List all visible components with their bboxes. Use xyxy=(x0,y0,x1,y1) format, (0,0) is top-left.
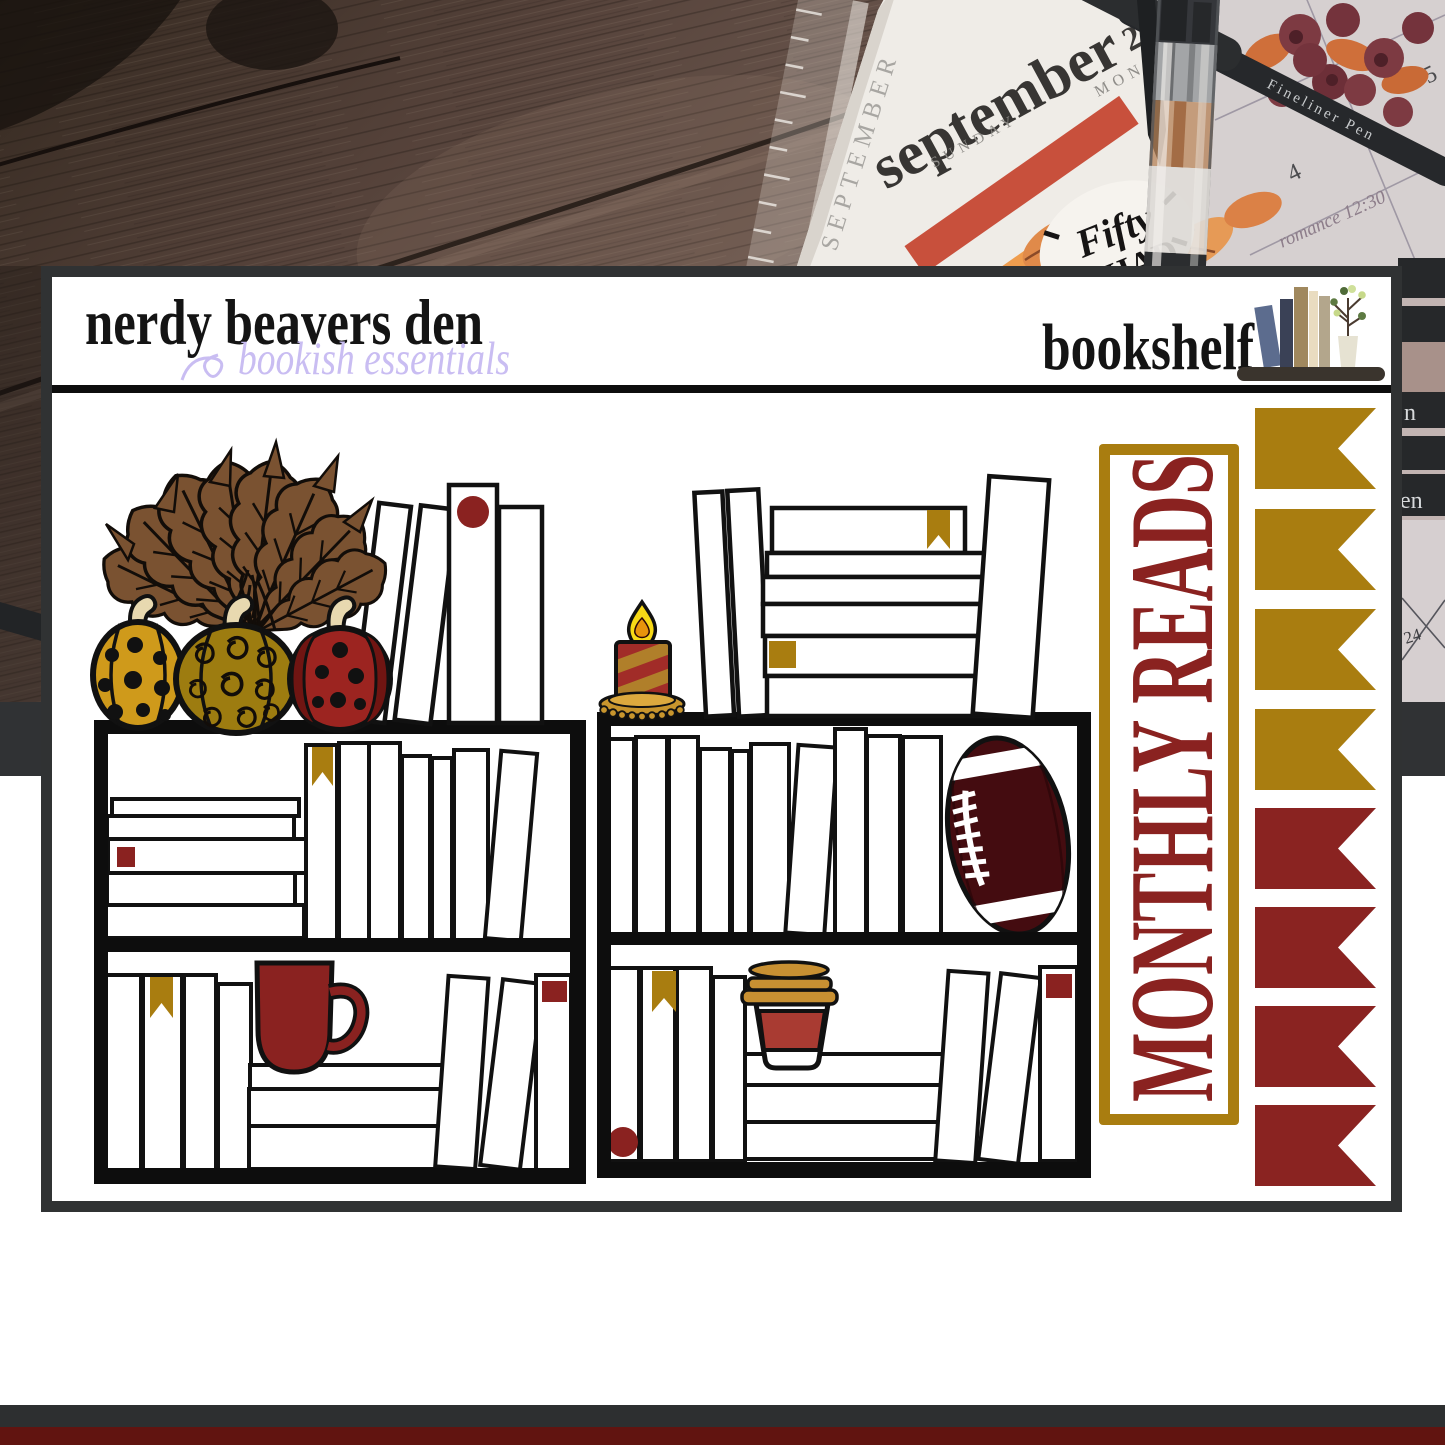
svg-text:en: en xyxy=(1400,488,1423,514)
svg-text:bookish essentials: bookish essentials xyxy=(238,333,510,385)
svg-text:bookshelf: bookshelf xyxy=(1042,311,1255,384)
svg-text:MONTHLY READS: MONTHLY READS xyxy=(1105,454,1238,1102)
svg-text:n: n xyxy=(1404,400,1416,426)
